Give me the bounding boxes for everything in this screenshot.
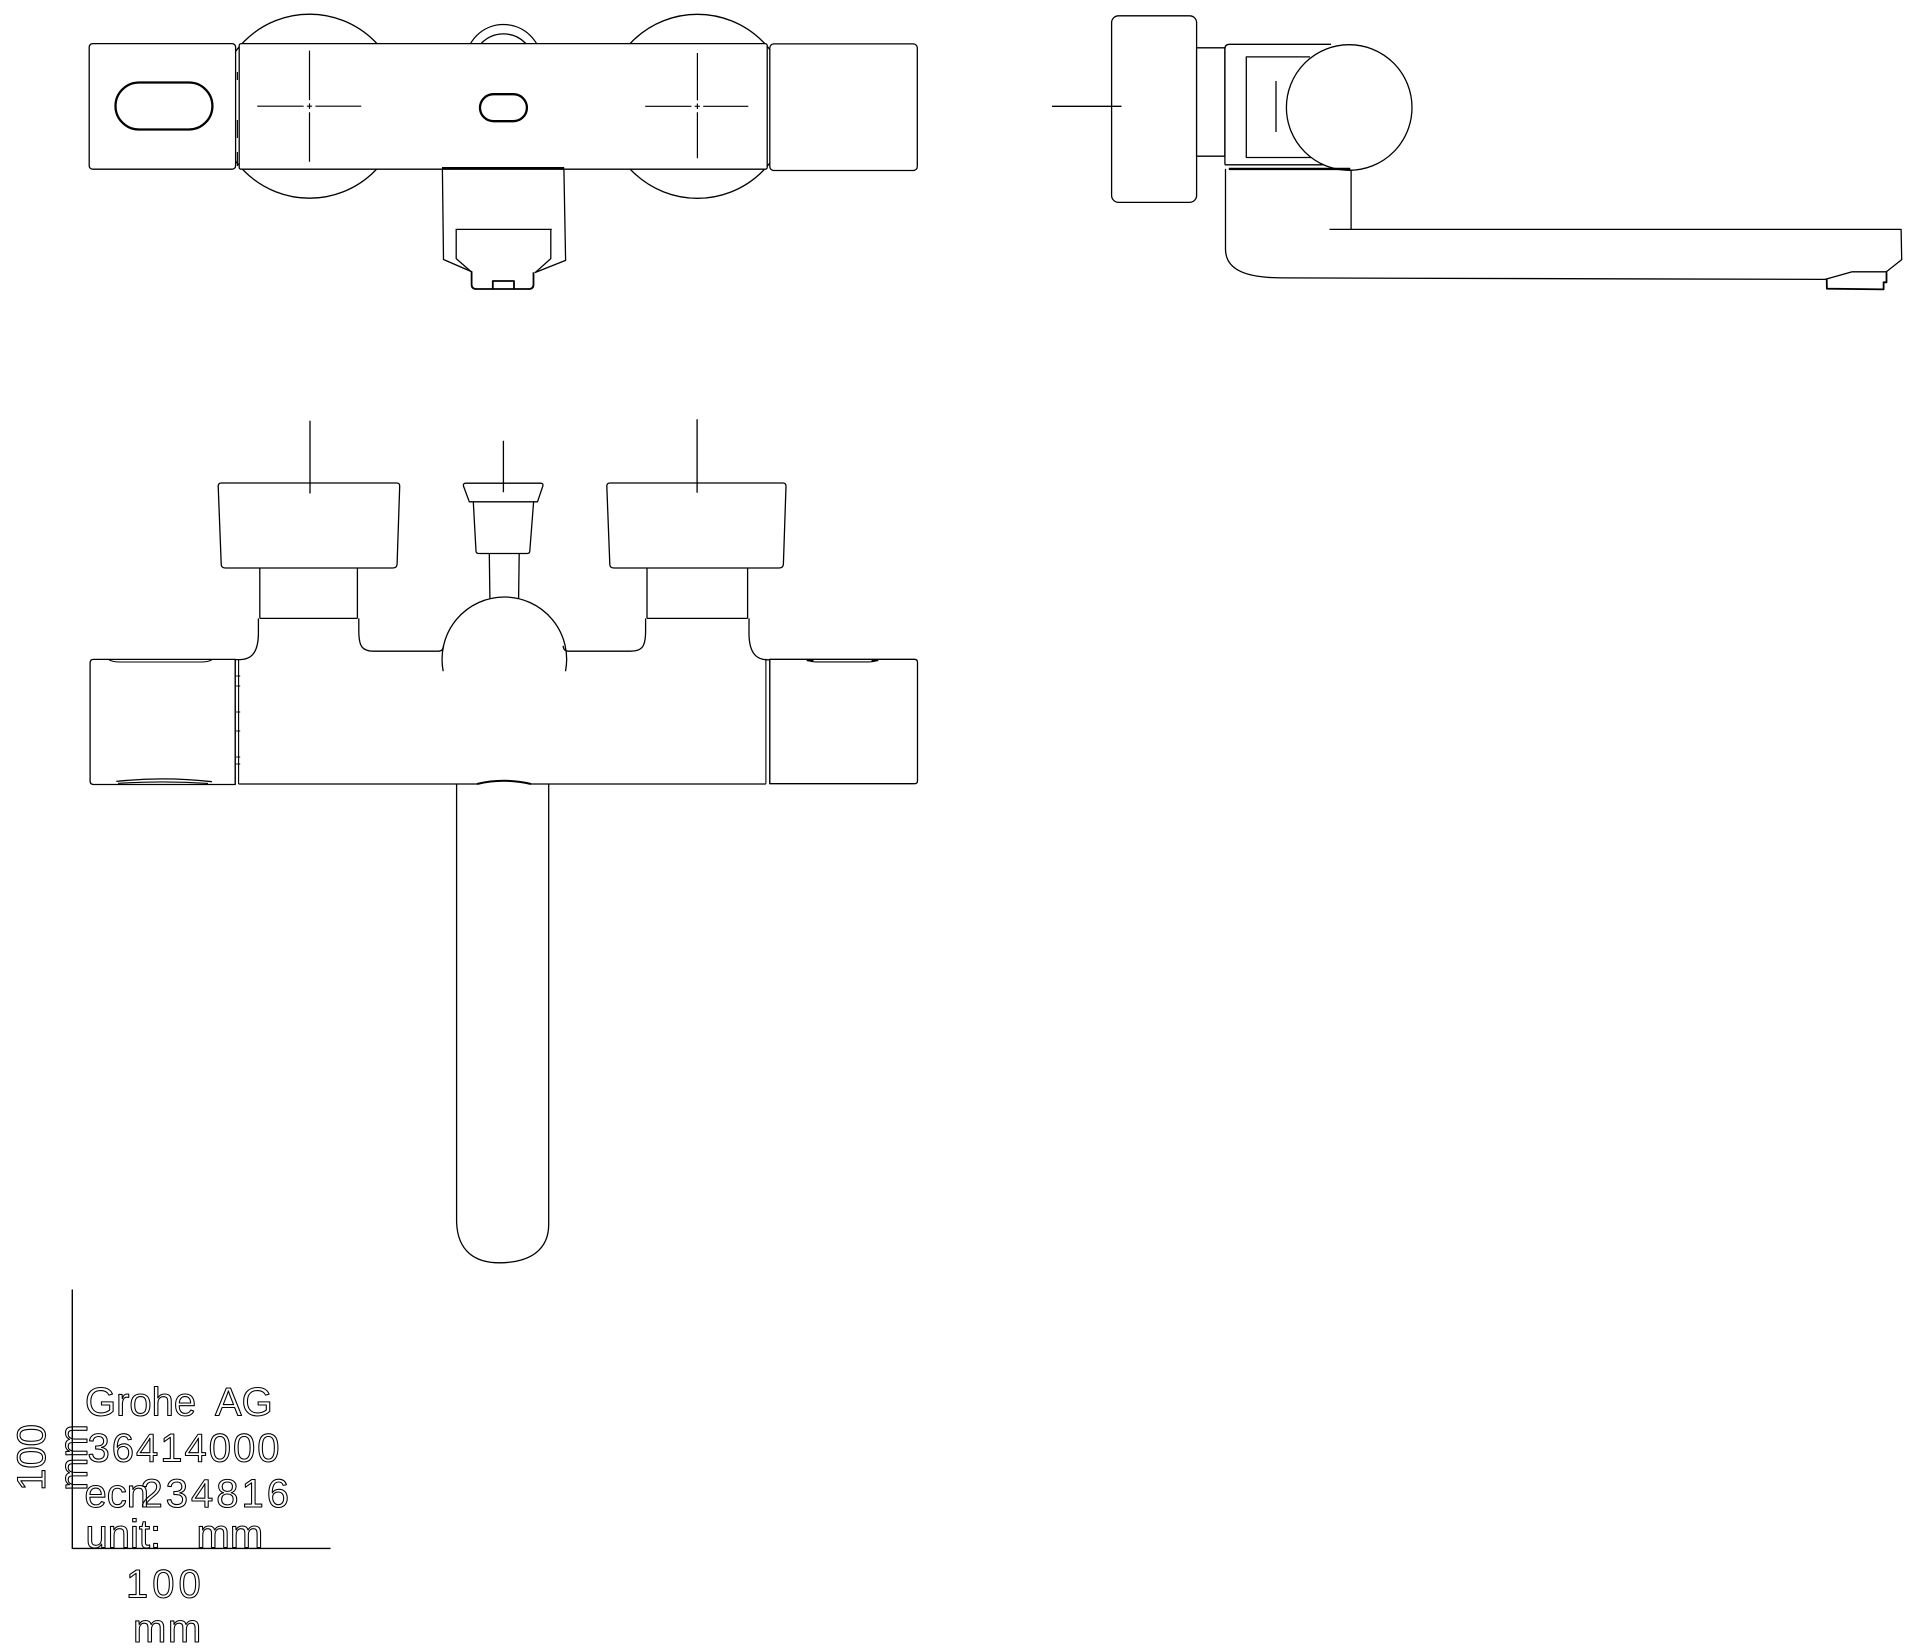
svg-text:100: 100: [126, 1563, 205, 1607]
svg-text:234816: 234816: [141, 1472, 292, 1516]
svg-text:mm: mm: [197, 1513, 264, 1557]
svg-text:Grohe: Grohe: [85, 1380, 196, 1424]
svg-text:unit:: unit:: [86, 1513, 162, 1557]
svg-text:mm: mm: [133, 1607, 203, 1648]
svg-text:36414000: 36414000: [88, 1427, 282, 1471]
svg-text:100: 100: [10, 1424, 54, 1491]
svg-text:AG: AG: [215, 1380, 273, 1424]
svg-text:mm: mm: [52, 1424, 96, 1491]
